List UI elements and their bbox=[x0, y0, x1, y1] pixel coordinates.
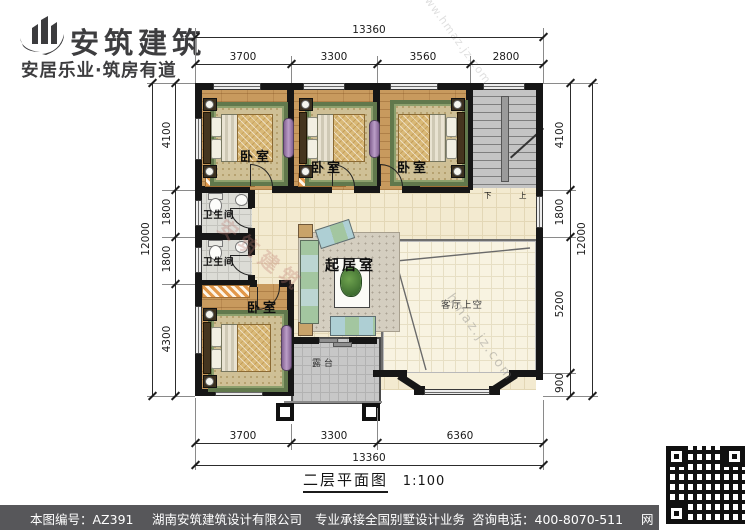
window-bath2-left bbox=[195, 247, 202, 273]
wall-corridor-b bbox=[272, 186, 332, 193]
dim-right-total: 12000 bbox=[576, 214, 588, 264]
dim-right-seg4: 900 bbox=[554, 358, 566, 408]
bed1-wardrobe bbox=[283, 118, 294, 158]
bed4-wardrobe bbox=[281, 325, 292, 371]
dim-right-seg2: 1800 bbox=[554, 187, 566, 237]
label-stair-down: 下 bbox=[484, 190, 492, 201]
window-bed4-left bbox=[195, 306, 202, 354]
bay-corner-right bbox=[489, 386, 500, 395]
dim-line-left-total bbox=[152, 83, 153, 396]
qr-code-panel bbox=[659, 440, 750, 530]
bed1-headboard bbox=[203, 112, 211, 164]
bed3-blanket bbox=[398, 114, 430, 162]
dim-top-seg2: 3300 bbox=[309, 51, 359, 63]
dim-left-seg2: 1800 bbox=[161, 187, 173, 237]
sill-bed4 bbox=[202, 285, 250, 298]
living-sofa-left bbox=[300, 240, 319, 324]
label-terrace: 露台 bbox=[312, 356, 336, 369]
window-bed1-top bbox=[213, 83, 261, 90]
footer-drawing-number: 本图编号：AZ391 bbox=[30, 509, 133, 528]
living-side-table bbox=[298, 322, 313, 336]
bed3-pillow bbox=[446, 117, 457, 137]
wall-terrace-top-a bbox=[291, 337, 319, 344]
footer-phone: 咨询电话：400-8070-511 bbox=[472, 509, 623, 528]
extension-line bbox=[147, 83, 195, 84]
floor-plan-page: 安筑建筑 安居乐业·筑房有道 bbox=[0, 0, 750, 530]
dim-line-right-total bbox=[592, 83, 593, 396]
wall-corridor-c bbox=[354, 186, 380, 193]
footer-service: 专业承接全国别墅设计业务 bbox=[315, 509, 465, 528]
extension-line bbox=[543, 400, 544, 470]
label-bedroom-4: 卧室 bbox=[247, 297, 279, 316]
window-bath1-left bbox=[195, 200, 202, 226]
dim-line-right-segments bbox=[570, 83, 571, 396]
dim-right-seg1: 4100 bbox=[554, 110, 566, 160]
dim-left-seg1: 4100 bbox=[161, 110, 173, 160]
bed3-lamp bbox=[453, 100, 462, 109]
qr-finder bbox=[666, 446, 687, 467]
qr-code bbox=[664, 444, 747, 526]
sink bbox=[235, 241, 248, 253]
dim-top-seg4: 2800 bbox=[481, 51, 531, 63]
dim-line-left-segments bbox=[175, 83, 176, 396]
window-corridor-right bbox=[536, 196, 543, 228]
dim-bottom-seg3: 6360 bbox=[435, 430, 485, 442]
bed3-mattress bbox=[428, 114, 446, 162]
label-bedroom-1: 卧室 bbox=[240, 146, 272, 165]
bed3-pillow bbox=[446, 139, 457, 159]
stair-rail bbox=[501, 96, 509, 182]
bed3-lamp bbox=[453, 167, 462, 176]
bed4-blanket bbox=[237, 324, 271, 372]
extension-line bbox=[147, 396, 195, 397]
bed2-headboard bbox=[299, 112, 307, 164]
extension-line bbox=[162, 284, 195, 285]
door-leaf-bed3 bbox=[380, 164, 381, 186]
label-bathroom-1: 卫生间 bbox=[203, 207, 235, 221]
extension-line bbox=[195, 450, 196, 470]
window-bed2-top bbox=[303, 83, 345, 90]
qr-finder bbox=[724, 446, 745, 467]
label-void: 客厅上空 bbox=[441, 297, 483, 311]
window-bay-bottom bbox=[424, 389, 490, 395]
bed3-headboard bbox=[457, 112, 465, 164]
sink bbox=[235, 194, 248, 206]
footer-bar: 本图编号：AZ391 湖南安筑建筑设计有限公司 专业承接全国别墅设计业务 咨询电… bbox=[0, 505, 750, 530]
bed2-wardrobe bbox=[369, 120, 380, 158]
bed4-lamp bbox=[205, 377, 214, 386]
qr-finder bbox=[666, 503, 687, 524]
door-leaf-bed1 bbox=[250, 164, 251, 186]
drawing-title: 二层平面图 bbox=[303, 471, 388, 493]
window-bed1-left bbox=[195, 118, 202, 160]
drawing-title-row: 二层平面图 1:100 bbox=[303, 469, 445, 490]
extension-line bbox=[377, 56, 378, 83]
bed4-headboard bbox=[203, 322, 211, 374]
label-bathroom-2: 卫生间 bbox=[203, 254, 235, 268]
extension-line bbox=[291, 424, 292, 450]
dim-bottom-seg2: 3300 bbox=[309, 430, 359, 442]
dim-top-total: 13360 bbox=[344, 24, 394, 36]
dim-line-top-segments bbox=[195, 64, 543, 65]
brand-logo-icon bbox=[16, 12, 68, 58]
bed2-blanket bbox=[333, 114, 365, 162]
living-sofa-bottom bbox=[330, 316, 376, 336]
bed2-lamp bbox=[301, 167, 310, 176]
dim-bottom-total: 13360 bbox=[344, 452, 394, 464]
label-bedroom-2: 卧室 bbox=[311, 157, 343, 176]
dim-right-seg3: 5200 bbox=[554, 279, 566, 329]
dim-line-top-total bbox=[195, 37, 543, 38]
dim-left-total: 12000 bbox=[140, 214, 152, 264]
dim-bottom-seg1: 3700 bbox=[218, 430, 268, 442]
footer-company: 湖南安筑建筑设计有限公司 bbox=[152, 509, 302, 528]
dim-line-bottom-total bbox=[195, 465, 543, 466]
bed1-lamp bbox=[205, 167, 214, 176]
dim-top-seg1: 3700 bbox=[218, 51, 268, 63]
extension-line bbox=[291, 56, 292, 83]
wall-corridor-a bbox=[195, 186, 250, 193]
wall-right bbox=[536, 83, 543, 380]
window-bed3-top bbox=[390, 83, 438, 90]
extension-line bbox=[470, 56, 471, 83]
terrace-sliding-door bbox=[333, 342, 352, 347]
dim-left-seg4: 4300 bbox=[161, 314, 173, 364]
bed1-lamp bbox=[205, 100, 214, 109]
brand-tagline: 安居乐业·筑房有道 bbox=[21, 57, 177, 82]
floor-terrace bbox=[291, 337, 381, 404]
terrace-column-left bbox=[276, 403, 294, 421]
wall-corridor-d bbox=[402, 186, 470, 193]
dim-top-seg3: 3560 bbox=[398, 51, 448, 63]
wall-bath-divider bbox=[195, 233, 252, 240]
label-living-room: 起居室 bbox=[325, 255, 376, 275]
dim-line-bottom-segments bbox=[195, 443, 543, 444]
watermark-site: www.hmaz.jz.com bbox=[416, 0, 494, 86]
brand-name: 安筑建筑 bbox=[70, 20, 206, 62]
bed2-lamp bbox=[301, 100, 310, 109]
label-stair-up: 上 bbox=[519, 190, 527, 201]
window-stair-top bbox=[483, 83, 525, 90]
label-bedroom-3: 卧室 bbox=[397, 157, 429, 176]
living-side-table bbox=[298, 224, 313, 238]
bed4-lamp bbox=[205, 310, 214, 319]
footer-web-char: 网 bbox=[641, 509, 654, 528]
wall-terrace-top-b bbox=[349, 337, 377, 344]
drawing-scale: 1:100 bbox=[403, 474, 445, 489]
dim-left-seg3: 1800 bbox=[161, 234, 173, 284]
